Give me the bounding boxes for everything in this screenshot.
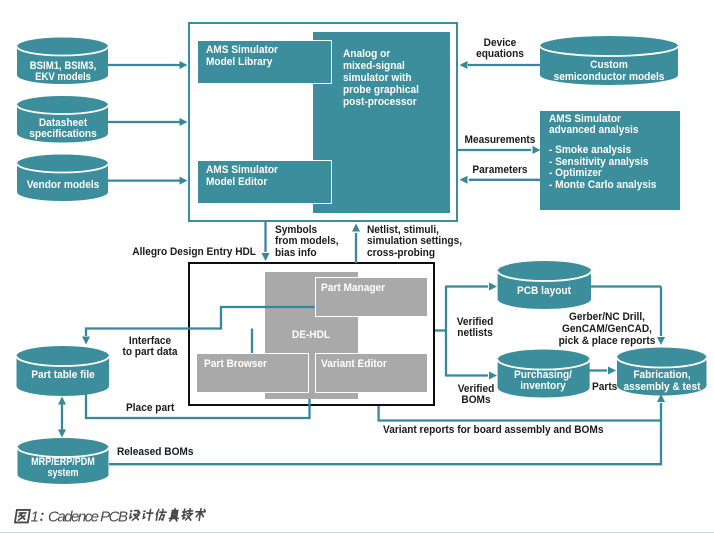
svg-text:Cadence PCB: Cadence PCB <box>48 508 128 525</box>
svg-text:1: 1 <box>31 508 39 525</box>
